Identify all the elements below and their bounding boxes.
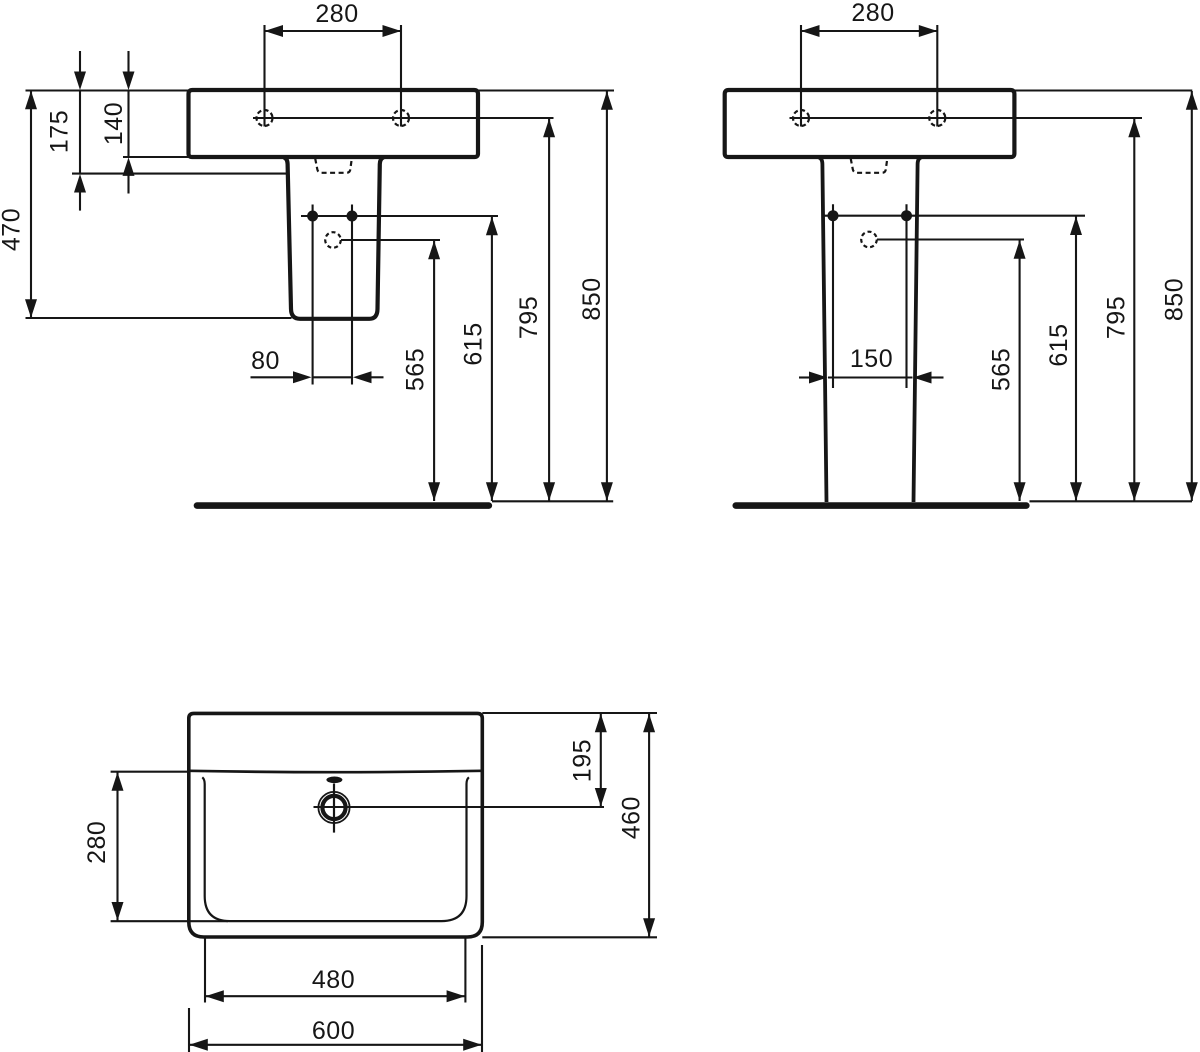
svg-text:80: 80: [251, 347, 280, 375]
svg-text:615: 615: [460, 322, 488, 365]
svg-text:565: 565: [402, 348, 430, 391]
svg-text:565: 565: [988, 348, 1016, 391]
svg-text:280: 280: [851, 0, 894, 27]
svg-text:280: 280: [83, 821, 111, 864]
svg-text:615: 615: [1045, 323, 1073, 366]
svg-text:470: 470: [0, 208, 26, 251]
svg-text:850: 850: [578, 277, 606, 320]
svg-text:195: 195: [569, 739, 597, 782]
svg-text:150: 150: [850, 345, 893, 373]
svg-text:175: 175: [46, 110, 74, 153]
svg-text:850: 850: [1161, 278, 1189, 321]
svg-text:140: 140: [100, 102, 128, 145]
svg-text:795: 795: [1103, 296, 1131, 339]
svg-text:480: 480: [312, 966, 355, 994]
svg-text:795: 795: [515, 296, 543, 339]
svg-text:460: 460: [617, 796, 645, 839]
svg-text:280: 280: [315, 0, 358, 28]
svg-text:600: 600: [312, 1017, 355, 1045]
